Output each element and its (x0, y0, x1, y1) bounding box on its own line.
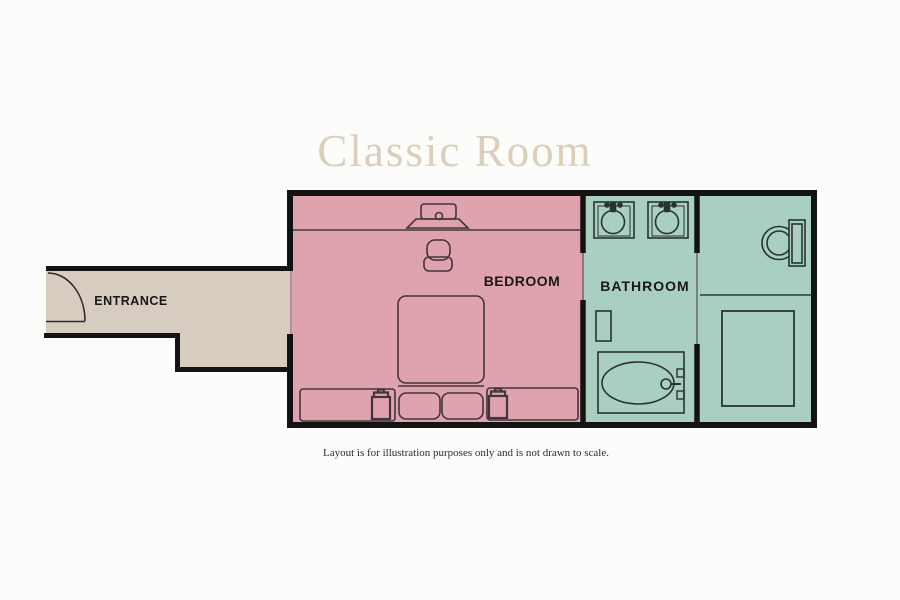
room-bathroom (583, 193, 697, 425)
floor-plan-page: Classic Room ENTRANCE BEDROOM BATHROOM L… (0, 0, 900, 600)
bathroom-label: BATHROOM (600, 278, 689, 294)
room-entrance (46, 266, 291, 372)
bedroom-label: BEDROOM (484, 273, 561, 289)
disclaimer-text: Layout is for illustration purposes only… (323, 447, 609, 459)
entrance-label: ENTRANCE (94, 294, 167, 308)
page-title: Classic Room (317, 125, 592, 177)
